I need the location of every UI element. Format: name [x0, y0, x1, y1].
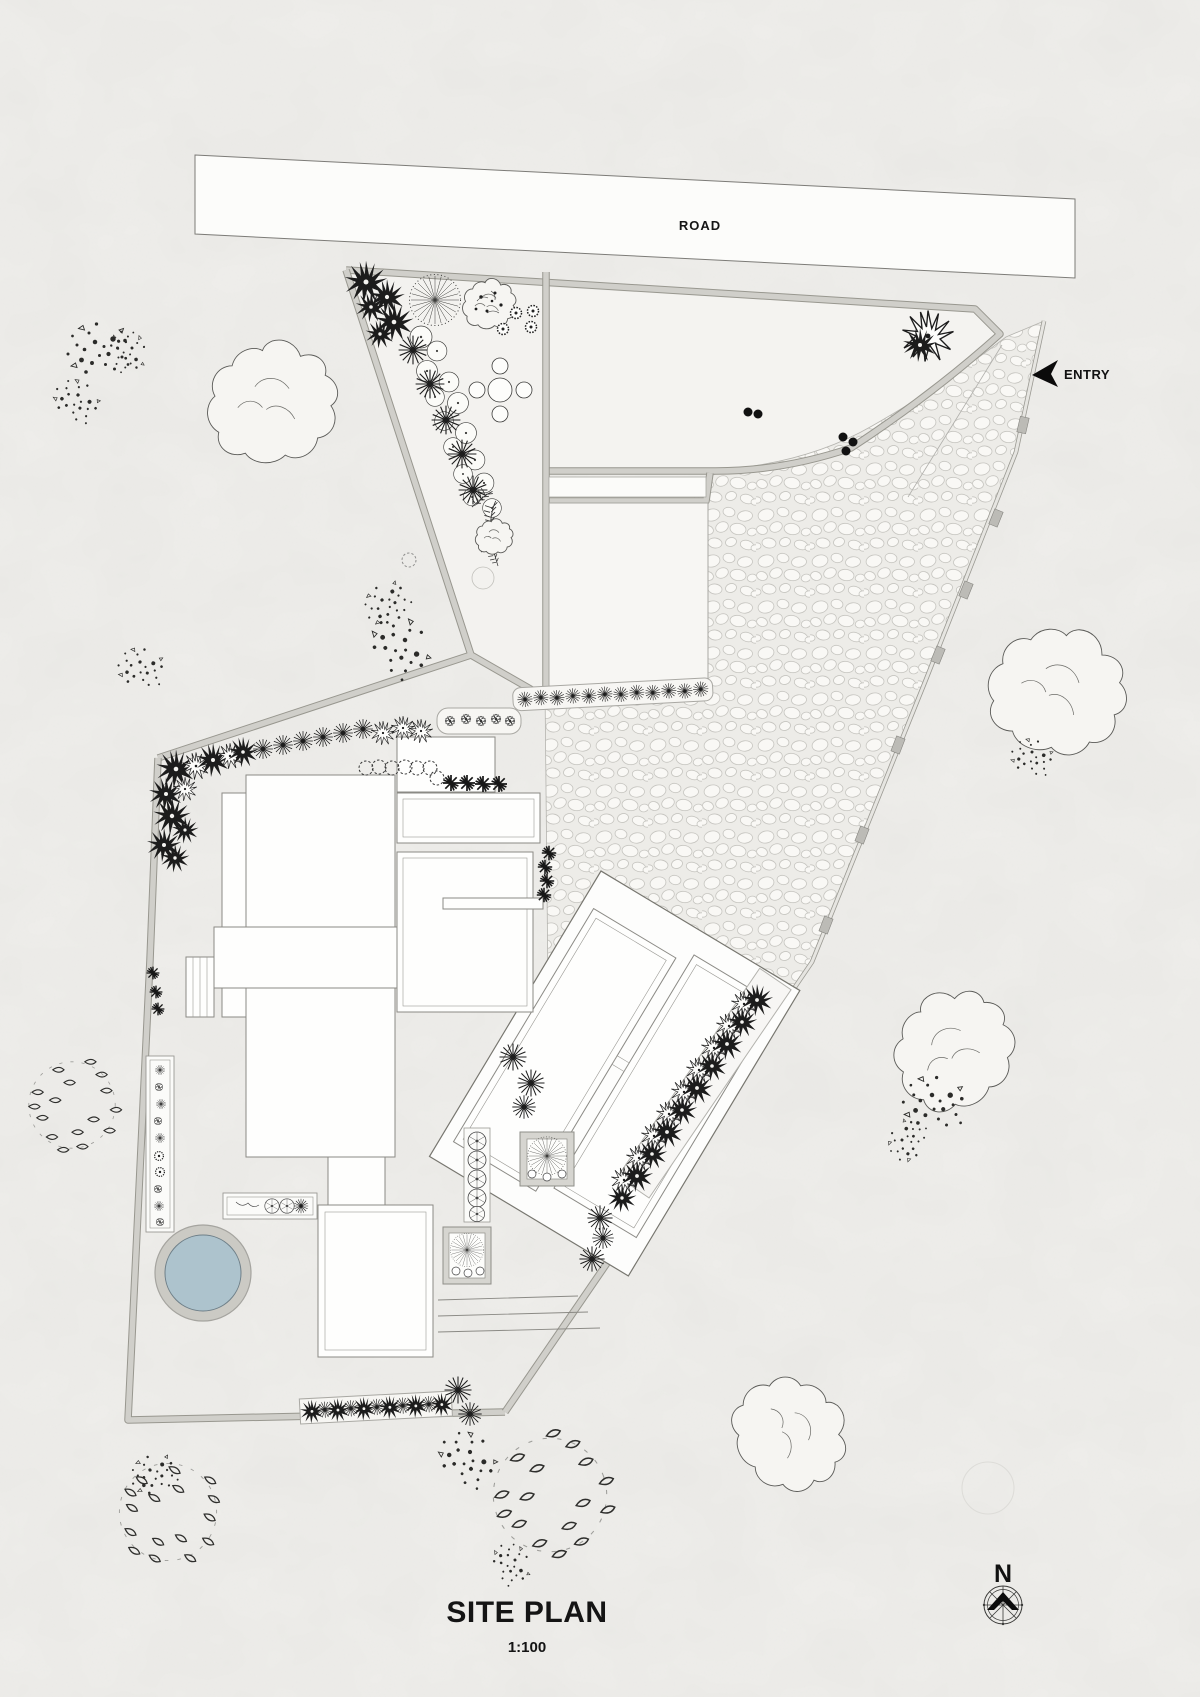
planter-column-trees — [464, 1128, 490, 1222]
page-title: SITE PLAN — [446, 1596, 607, 1629]
road-label: ROAD — [679, 218, 721, 233]
planter-left-bed — [146, 1056, 174, 1232]
planter-square-1 — [520, 1132, 574, 1186]
entry-label: ENTRY — [1064, 367, 1110, 382]
planter-west-bed — [223, 1193, 317, 1219]
porch-steps — [186, 957, 214, 1017]
site-plan-sheet: ROAD — [0, 0, 1200, 1697]
pool — [155, 1225, 251, 1321]
planter-square-2 — [443, 1227, 491, 1284]
north-label: N — [994, 1560, 1012, 1588]
site-plan-drawing: ROAD — [0, 0, 1200, 1697]
scale-label: 1:100 — [508, 1639, 546, 1656]
lawn-panel — [549, 503, 708, 686]
walkway-strip — [549, 477, 706, 497]
